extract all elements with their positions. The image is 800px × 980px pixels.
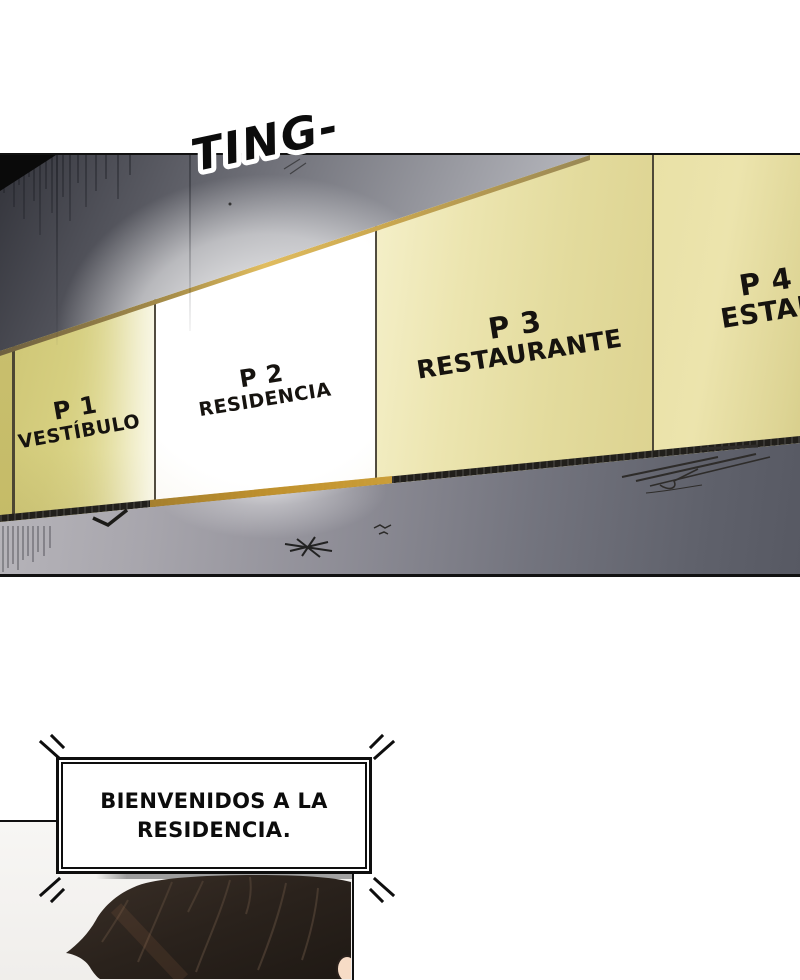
- announcement-line-2: RESIDENCIA.: [100, 816, 327, 844]
- comic-page: P 1 VESTÍBULO P 2 RESIDENCIA P 3 RESTAUR…: [0, 0, 800, 980]
- announcement-box: BIENVENIDOS A LA RESIDENCIA.: [56, 757, 372, 874]
- sfx-text: TING-: [187, 101, 344, 182]
- ear: [337, 956, 351, 979]
- announcement-line-1: BIENVENIDOS A LA: [100, 787, 327, 815]
- panel-elevator-sign-wall: P 1 VESTÍBULO P 2 RESIDENCIA P 3 RESTAUR…: [0, 153, 800, 577]
- sfx-ting: TING-: [140, 78, 390, 198]
- announcement-inner-border: BIENVENIDOS A LA RESIDENCIA.: [61, 762, 367, 869]
- announcement-text: BIENVENIDOS A LA RESIDENCIA.: [100, 787, 327, 844]
